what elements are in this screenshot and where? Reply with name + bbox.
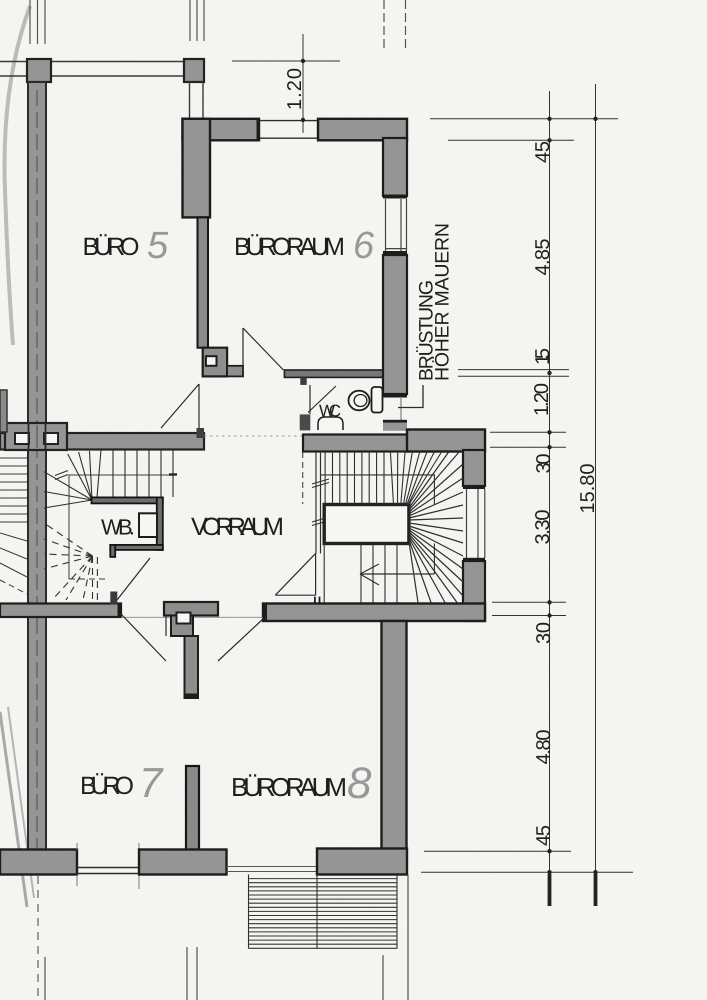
svg-text:WC: WC <box>319 402 341 421</box>
svg-text:45: 45 <box>533 825 555 846</box>
svg-text:4.80: 4.80 <box>533 730 555 765</box>
svg-text:15: 15 <box>532 348 554 365</box>
svg-text:1.20: 1.20 <box>531 383 553 416</box>
svg-text:VORRAUM: VORRAUM <box>191 513 284 541</box>
svg-text:BÜRORAUM: BÜRORAUM <box>231 772 347 802</box>
svg-text:5: 5 <box>147 225 169 267</box>
svg-text:6: 6 <box>353 225 375 267</box>
svg-text:45: 45 <box>532 141 554 163</box>
svg-text:8: 8 <box>347 759 372 808</box>
svg-text:7: 7 <box>139 759 164 806</box>
svg-text:WB.: WB. <box>101 515 135 540</box>
svg-text:BÜRORAUM: BÜRORAUM <box>234 233 345 261</box>
svg-text:1.20: 1.20 <box>284 68 306 110</box>
svg-text:3.30: 3.30 <box>532 510 554 545</box>
svg-text:HÖHER MAUERN: HÖHER MAUERN <box>432 223 454 381</box>
svg-text:30: 30 <box>533 454 555 474</box>
svg-text:15.80: 15.80 <box>577 464 599 514</box>
svg-text:4.85: 4.85 <box>532 239 554 276</box>
svg-text:30: 30 <box>533 622 555 644</box>
svg-text:BÜRO: BÜRO <box>80 772 134 800</box>
svg-text:BÜRO: BÜRO <box>83 233 140 261</box>
